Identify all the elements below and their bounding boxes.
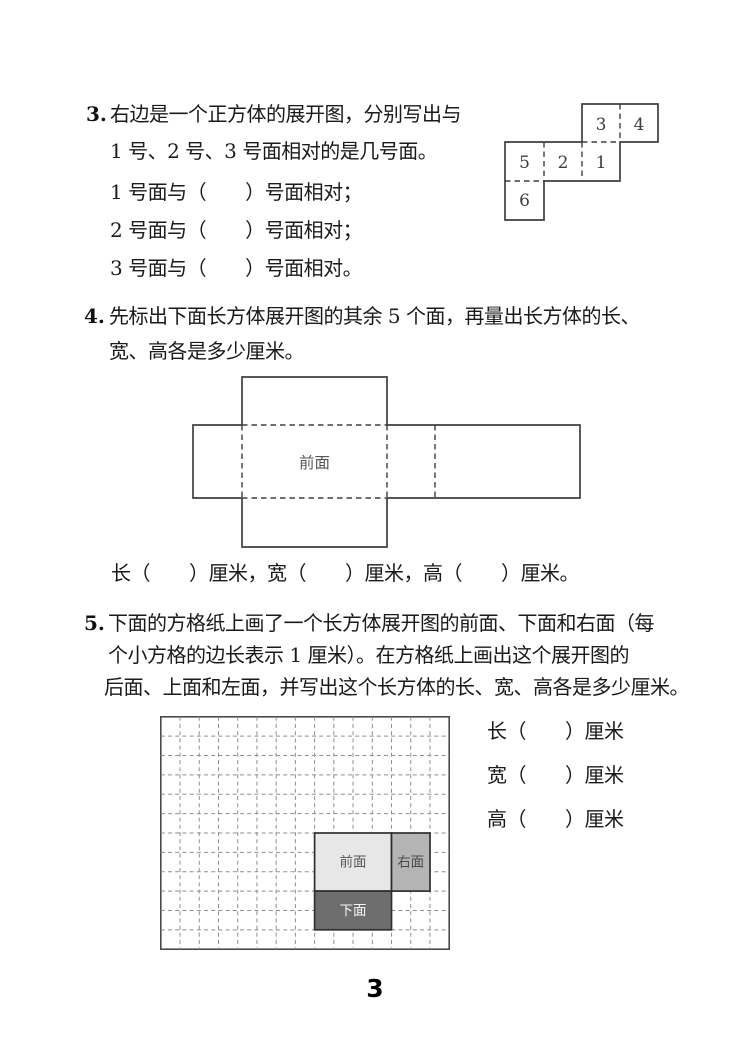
box-net-diagram: 前面 [190,375,584,550]
cube-face-6-label: 6 [519,191,530,211]
question-3-blank-3: 3 号面与（ ）号面相对。 [110,256,362,280]
cube-face-5-label: 5 [519,153,530,173]
page-number: 3 [0,974,750,1003]
question-5-line-1: 下面的方格纸上画了一个长方体展开图的前面、下面和右面（每 [108,611,654,635]
question-5-answer-length: 长（ ）厘米 [487,719,624,743]
question-4-number: 4. [84,304,105,328]
question-4-answer-line: 长（ ）厘米，宽（ ）厘米，高（ ）厘米。 [111,561,579,585]
question-5-line-2: 个小方格的边长表示 1 厘米）。在方格纸上画出这个展开图的 [108,643,629,667]
question-5-line-3: 后面、上面和左面，并写出这个长方体的长、宽、高各是多少厘米。 [104,675,689,699]
box-net-front-label: 前面 [299,454,330,472]
grid-paper-diagram: 前面 右面 下面 [160,716,450,950]
grid-front-label: 前面 [340,854,367,871]
question-3-line-2: 1 号、2 号、3 号面相对的是几号面。 [110,139,437,163]
cube-face-1-label: 1 [596,153,607,173]
question-3-number: 3. [86,102,107,126]
question-4-line-1: 先标出下面长方体展开图的其余 5 个面，再量出长方体的长、 [109,304,640,328]
cube-net-diagram: 3 4 5 2 1 6 [504,102,660,222]
question-3-blank-2: 2 号面与（ ）号面相对； [110,218,362,242]
grid-right-label: 右面 [397,855,424,871]
question-5-answer-width: 宽（ ）厘米 [487,763,624,787]
question-3-blank-1: 1 号面与（ ）号面相对； [110,180,362,204]
cube-face-4-label: 4 [634,115,645,135]
cube-face-2-label: 2 [558,153,569,173]
question-5-number: 5. [84,611,105,635]
question-4-line-2: 宽、高各是多少厘米。 [109,339,304,363]
question-5-answer-height: 高（ ）厘米 [487,807,624,831]
cube-face-3-label: 3 [596,115,607,135]
question-3-line-1: 右边是一个正方体的展开图，分别写出与 [110,102,461,126]
workbook-page: 3. 右边是一个正方体的展开图，分别写出与 1 号、2 号、3 号面相对的是几号… [0,0,750,1052]
grid-bottom-label: 下面 [340,903,367,919]
